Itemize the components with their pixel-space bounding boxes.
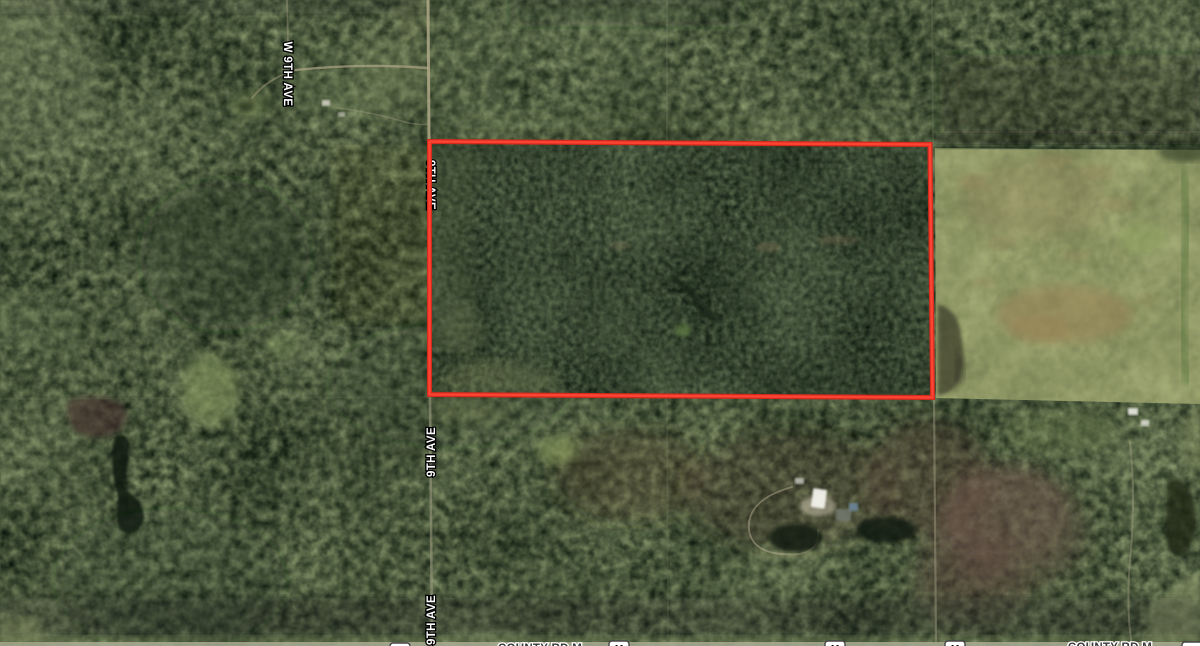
svg-text:W 9TH AVE: W 9TH AVE (281, 42, 293, 107)
svg-text:9TH AVE: 9TH AVE (426, 427, 438, 477)
svg-text:9TH AVE: 9TH AVE (426, 595, 438, 645)
svg-text:COUNTY RD M: COUNTY RD M (1068, 642, 1152, 646)
